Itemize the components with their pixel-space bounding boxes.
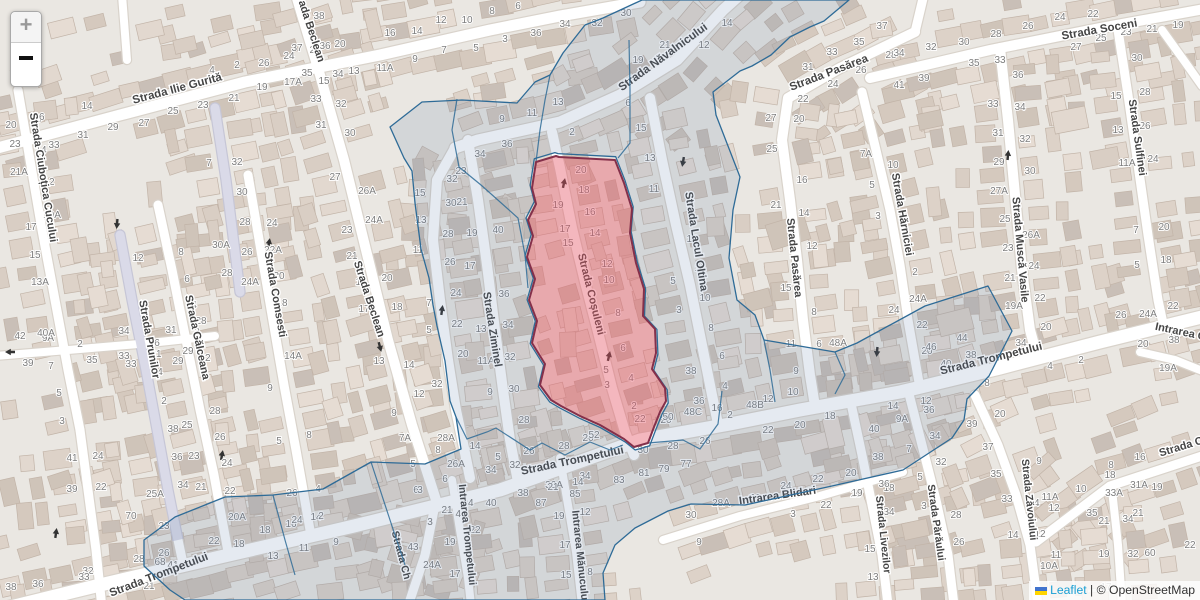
svg-text:5: 5 [869, 180, 875, 191]
svg-text:20: 20 [1040, 322, 1052, 333]
svg-text:24: 24 [827, 79, 839, 90]
svg-text:33: 33 [125, 359, 137, 370]
svg-text:22: 22 [1167, 301, 1179, 312]
svg-text:9: 9 [267, 383, 273, 394]
svg-text:24: 24 [1147, 154, 1159, 165]
svg-text:30: 30 [958, 37, 970, 48]
svg-text:42: 42 [14, 331, 26, 342]
svg-text:31A: 31A [1130, 480, 1148, 491]
svg-text:10: 10 [1075, 484, 1087, 495]
svg-text:23: 23 [188, 451, 200, 462]
svg-text:35: 35 [853, 37, 865, 48]
svg-text:36: 36 [32, 579, 44, 590]
svg-text:4: 4 [1047, 361, 1053, 372]
svg-text:26: 26 [1022, 21, 1034, 32]
svg-text:28: 28 [239, 217, 251, 228]
svg-text:33A: 33A [1105, 488, 1123, 499]
svg-text:10A: 10A [1040, 561, 1058, 572]
svg-text:27: 27 [138, 118, 150, 129]
svg-text:8: 8 [489, 6, 495, 17]
svg-text:23: 23 [341, 225, 353, 236]
svg-text:22: 22 [95, 482, 107, 493]
svg-text:33: 33 [310, 94, 322, 105]
svg-text:29: 29 [182, 346, 194, 357]
svg-text:27: 27 [765, 113, 777, 124]
svg-text:7A: 7A [399, 433, 412, 444]
svg-text:19: 19 [1151, 482, 1163, 493]
svg-text:10: 10 [887, 160, 899, 171]
svg-text:26: 26 [241, 247, 253, 258]
svg-text:5: 5 [56, 388, 62, 399]
svg-text:29: 29 [172, 356, 184, 367]
svg-text:12: 12 [806, 241, 818, 252]
svg-text:12: 12 [413, 389, 425, 400]
svg-text:31: 31 [802, 62, 814, 73]
svg-text:8: 8 [811, 307, 817, 318]
svg-text:30: 30 [236, 187, 248, 198]
svg-text:5: 5 [276, 436, 282, 447]
svg-text:32: 32 [231, 157, 243, 168]
svg-text:39: 39 [966, 419, 978, 430]
svg-text:25: 25 [167, 106, 179, 117]
svg-text:11A: 11A [1041, 492, 1058, 503]
svg-text:35: 35 [86, 355, 98, 366]
svg-text:31: 31 [77, 130, 89, 141]
svg-text:23: 23 [1002, 243, 1014, 254]
svg-text:5: 5 [1134, 260, 1140, 271]
svg-text:16: 16 [384, 28, 396, 39]
svg-text:11A: 11A [1118, 158, 1135, 169]
svg-text:21: 21 [228, 93, 240, 104]
svg-text:20: 20 [381, 273, 393, 284]
svg-text:30: 30 [685, 510, 697, 521]
svg-text:20: 20 [1158, 222, 1170, 233]
svg-text:3: 3 [790, 509, 796, 520]
svg-text:31: 31 [315, 120, 327, 131]
svg-text:19: 19 [1098, 549, 1110, 560]
svg-text:7: 7 [48, 361, 54, 372]
svg-text:12: 12 [435, 15, 447, 26]
svg-text:14: 14 [411, 26, 423, 37]
svg-text:8: 8 [178, 247, 184, 258]
svg-text:5: 5 [473, 43, 479, 54]
svg-text:7: 7 [426, 298, 432, 309]
svg-text:33: 33 [994, 55, 1006, 66]
svg-text:25: 25 [999, 214, 1011, 225]
svg-text:33: 33 [987, 99, 999, 110]
svg-text:24: 24 [888, 305, 900, 316]
svg-text:23: 23 [197, 100, 209, 111]
svg-text:9: 9 [412, 54, 418, 65]
svg-text:35: 35 [301, 68, 313, 79]
svg-text:35: 35 [990, 469, 1002, 480]
svg-text:15: 15 [780, 283, 792, 294]
svg-text:41: 41 [893, 80, 905, 91]
svg-text:13: 13 [373, 356, 385, 367]
svg-text:24A: 24A [909, 294, 927, 305]
svg-text:23: 23 [9, 139, 21, 150]
svg-text:48A: 48A [829, 338, 847, 349]
svg-text:13: 13 [348, 66, 360, 77]
svg-text:39: 39 [918, 73, 930, 84]
svg-text:19: 19 [1172, 20, 1184, 31]
svg-text:27: 27 [329, 172, 341, 183]
svg-text:24: 24 [1054, 12, 1066, 23]
svg-text:24: 24 [266, 218, 278, 229]
svg-text:24: 24 [92, 451, 104, 462]
svg-text:15: 15 [864, 544, 876, 555]
svg-text:11: 11 [1051, 550, 1062, 561]
svg-text:22: 22 [1087, 9, 1099, 20]
svg-text:30: 30 [1024, 166, 1036, 177]
svg-text:9: 9 [1036, 456, 1042, 467]
svg-text:15: 15 [1110, 91, 1122, 102]
svg-text:38: 38 [5, 582, 17, 593]
svg-text:39: 39 [66, 484, 78, 495]
svg-text:26A: 26A [358, 186, 376, 197]
svg-text:11A: 11A [376, 63, 393, 74]
svg-text:12: 12 [132, 253, 144, 264]
svg-text:22: 22 [820, 500, 832, 511]
svg-text:10: 10 [461, 15, 473, 26]
svg-text:2: 2 [161, 396, 167, 407]
svg-text:28: 28 [990, 29, 1002, 40]
svg-text:6: 6 [515, 1, 521, 12]
svg-text:25: 25 [766, 144, 778, 155]
svg-text:26: 26 [1115, 310, 1127, 321]
svg-text:37: 37 [982, 442, 994, 453]
svg-text:20: 20 [1137, 339, 1149, 350]
svg-text:20: 20 [5, 120, 17, 131]
svg-text:33: 33 [78, 572, 90, 583]
svg-text:16: 16 [796, 175, 808, 186]
svg-text:31: 31 [165, 325, 177, 336]
svg-text:26: 26 [258, 58, 270, 69]
svg-text:28: 28 [950, 510, 962, 521]
svg-text:19: 19 [256, 82, 268, 93]
svg-text:21: 21 [1146, 24, 1158, 35]
svg-text:20: 20 [994, 409, 1006, 420]
svg-text:28A: 28A [437, 433, 455, 444]
svg-text:34: 34 [118, 326, 130, 337]
svg-text:9: 9 [391, 408, 397, 419]
svg-text:28: 28 [221, 268, 233, 279]
svg-text:25A: 25A [146, 489, 164, 500]
svg-text:18: 18 [391, 302, 403, 313]
svg-text:7: 7 [206, 158, 212, 169]
svg-text:32: 32 [431, 379, 443, 390]
svg-text:31: 31 [992, 128, 1004, 139]
svg-text:15: 15 [29, 250, 41, 261]
svg-text:40A: 40A [37, 328, 55, 339]
svg-text:29: 29 [993, 157, 1005, 168]
svg-text:3: 3 [59, 416, 65, 427]
svg-text:28: 28 [209, 406, 221, 417]
svg-text:35: 35 [1086, 508, 1098, 519]
svg-text:25: 25 [181, 420, 193, 431]
svg-text:3: 3 [875, 211, 881, 222]
svg-text:70: 70 [125, 511, 137, 522]
svg-text:18: 18 [1160, 255, 1172, 266]
svg-text:27A: 27A [990, 186, 1008, 197]
svg-text:22: 22 [797, 94, 809, 105]
svg-text:2: 2 [234, 60, 240, 71]
svg-text:60: 60 [1144, 548, 1156, 559]
svg-text:34: 34 [1014, 102, 1026, 113]
svg-text:18: 18 [1104, 470, 1116, 481]
svg-text:7A: 7A [860, 149, 873, 160]
svg-text:20: 20 [793, 114, 805, 125]
svg-text:36: 36 [171, 452, 183, 463]
svg-text:13: 13 [1112, 125, 1124, 136]
svg-text:26: 26 [953, 537, 965, 548]
svg-text:24A: 24A [365, 215, 383, 226]
svg-text:34: 34 [332, 69, 344, 80]
svg-text:16: 16 [1134, 452, 1146, 463]
svg-text:19: 19 [851, 488, 863, 499]
svg-text:33: 33 [826, 47, 838, 58]
svg-text:37: 37 [876, 21, 888, 32]
svg-text:39: 39 [22, 358, 34, 369]
svg-text:33: 33 [1001, 494, 1013, 505]
svg-text:22: 22 [1034, 293, 1046, 304]
svg-text:24A: 24A [241, 277, 259, 288]
svg-text:19A: 19A [1159, 363, 1177, 374]
svg-text:5: 5 [426, 325, 432, 336]
svg-text:14: 14 [403, 360, 415, 371]
svg-text:24A: 24A [1139, 309, 1157, 320]
svg-text:30: 30 [344, 128, 356, 139]
svg-text:34: 34 [893, 48, 905, 59]
svg-text:24: 24 [1028, 261, 1040, 272]
svg-text:2: 2 [1078, 355, 1084, 366]
svg-text:14: 14 [1007, 530, 1019, 541]
svg-text:30: 30 [1131, 53, 1143, 64]
svg-text:5: 5 [917, 472, 923, 483]
svg-text:7: 7 [1133, 225, 1139, 236]
svg-text:33: 33 [48, 140, 60, 151]
svg-text:38: 38 [167, 424, 179, 435]
svg-text:20: 20 [334, 39, 346, 50]
svg-text:9: 9 [696, 537, 702, 548]
svg-text:2: 2 [912, 267, 918, 278]
svg-text:32: 32 [935, 457, 947, 468]
svg-text:30A: 30A [212, 240, 230, 251]
svg-text:21: 21 [195, 482, 207, 493]
svg-text:22: 22 [1184, 540, 1196, 551]
svg-text:27: 27 [1070, 42, 1082, 53]
svg-text:12: 12 [1048, 503, 1060, 514]
svg-text:24: 24 [221, 458, 233, 469]
svg-text:14A: 14A [284, 351, 302, 362]
svg-text:21: 21 [770, 200, 782, 211]
svg-text:28: 28 [133, 554, 145, 565]
svg-text:32: 32 [1019, 134, 1031, 145]
svg-text:37: 37 [291, 43, 303, 54]
svg-text:15: 15 [318, 76, 330, 87]
svg-text:32: 32 [335, 99, 347, 110]
svg-text:22: 22 [224, 486, 236, 497]
svg-text:28: 28 [1139, 87, 1151, 98]
svg-text:36: 36 [530, 28, 542, 39]
svg-text:41: 41 [66, 453, 78, 464]
svg-text:38: 38 [313, 11, 325, 22]
svg-text:8: 8 [306, 430, 312, 441]
svg-text:8: 8 [435, 445, 441, 456]
svg-text:36: 36 [1012, 70, 1024, 81]
svg-text:13A: 13A [31, 277, 49, 288]
svg-text:34: 34 [559, 19, 571, 30]
svg-text:3: 3 [921, 501, 927, 512]
svg-text:35: 35 [968, 58, 980, 69]
svg-text:21: 21 [1098, 516, 1110, 527]
svg-text:21: 21 [1004, 273, 1016, 284]
svg-text:34: 34 [177, 480, 189, 491]
svg-text:17: 17 [25, 222, 37, 233]
svg-text:21A: 21A [10, 167, 28, 178]
svg-text:21: 21 [1132, 508, 1144, 519]
svg-text:36: 36 [878, 479, 890, 490]
svg-text:7: 7 [441, 45, 447, 56]
svg-text:17A: 17A [284, 77, 302, 88]
svg-text:26: 26 [214, 432, 226, 443]
svg-text:3: 3 [502, 34, 508, 45]
svg-text:14: 14 [81, 101, 93, 112]
svg-text:2: 2 [77, 339, 83, 350]
svg-text:14: 14 [798, 208, 810, 219]
svg-text:6: 6 [184, 274, 190, 285]
svg-text:32: 32 [1127, 549, 1139, 560]
svg-text:32: 32 [925, 42, 937, 53]
svg-text:13: 13 [867, 572, 879, 583]
svg-text:29: 29 [107, 122, 119, 133]
